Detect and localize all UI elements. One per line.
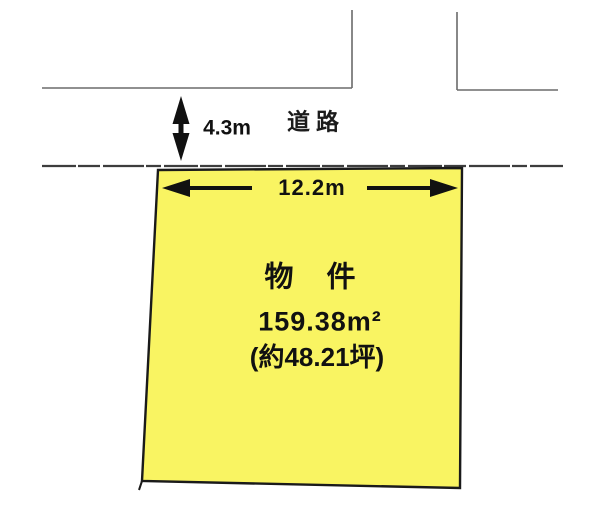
plot-corner-tick <box>139 481 142 490</box>
plot-area-tsubo-label: (約48.21坪) <box>250 344 384 370</box>
plot-title: 物 件 <box>264 264 357 293</box>
diagram-lines <box>0 0 600 520</box>
frontage-label: 12.2m <box>278 177 345 199</box>
road-width-arrow <box>173 96 190 161</box>
road-name-label: 道路 <box>287 111 345 134</box>
land-plot-diagram: 4.3m 道路 12.2m 物 件 159.38m² (約48.21坪) <box>0 0 600 520</box>
plot-area-label: 159.38m² <box>258 309 382 336</box>
road-width-label: 4.3m <box>203 118 251 139</box>
